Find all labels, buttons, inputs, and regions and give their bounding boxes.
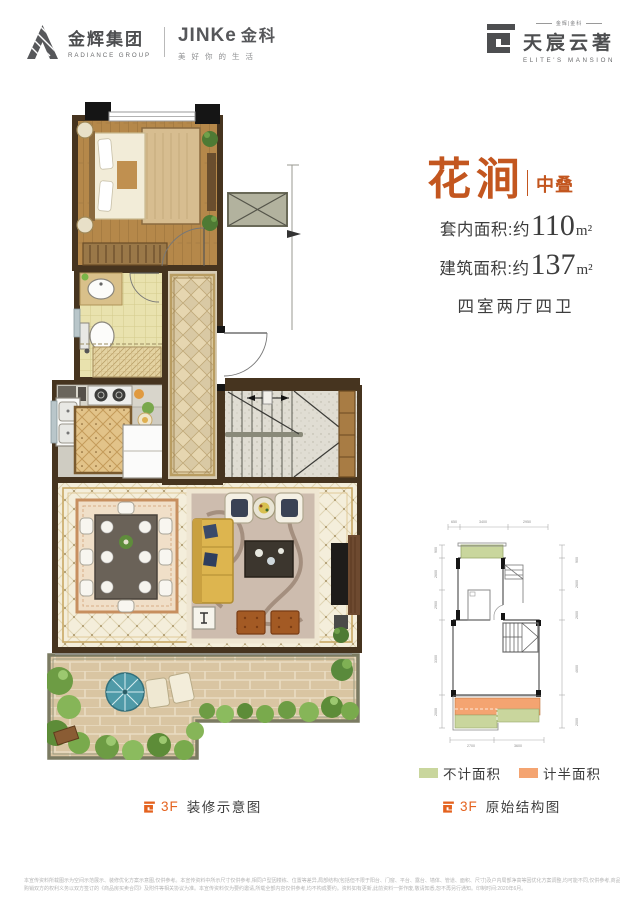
mansion-mini-icon bbox=[143, 800, 156, 813]
kitchen-window bbox=[51, 401, 57, 443]
dims-top: 650 3400 2950 bbox=[448, 520, 548, 530]
build-area-line: 建筑面积:约 137 m² bbox=[413, 250, 619, 280]
caption-right-text: 原始结构图 bbox=[486, 796, 561, 816]
disclaimer-line1: 本宣传资料所载图示为空间示范展示、装修优化方案示意图,仅供参考。本宣传资料中所示… bbox=[24, 877, 620, 885]
floorplan-3f-structural: 650 3400 2950 900 2600 2900 3300 2000 bbox=[432, 515, 628, 751]
legend-not-counted: 不计面积 bbox=[419, 763, 501, 783]
bathroom-window bbox=[74, 309, 80, 337]
staircase bbox=[222, 378, 360, 480]
mansion-name-en: ELITE'S MANSION bbox=[523, 57, 615, 64]
hallway-runner bbox=[171, 275, 214, 475]
dining-set bbox=[77, 500, 177, 612]
living-dining-room bbox=[55, 480, 360, 650]
svg-text:4600: 4600 bbox=[575, 665, 579, 673]
caption-structural-plan: 3F 原始结构图 bbox=[442, 796, 561, 816]
caption-right-floor: 3F bbox=[460, 799, 478, 814]
room-layout-text: 四室两厅四卫 bbox=[413, 293, 619, 317]
not-counted-swatch bbox=[419, 768, 438, 778]
header-left-logos: 金辉集团 RADIANCE GROUP JINKe 金科 美好你的生活 bbox=[24, 22, 277, 62]
unit-info-block: 花涧 中叠 套内面积:约 110 m² 建筑面积:约 137 m² 四室两厅四卫 bbox=[413, 158, 619, 317]
area-legend: 不计面积 计半面积 bbox=[419, 763, 601, 783]
nightstand bbox=[77, 122, 93, 138]
caption-decorated-plan: 3F 装修示意图 bbox=[143, 796, 262, 816]
jinke-logo-latin: JINKe bbox=[178, 25, 237, 47]
sofa-group bbox=[189, 491, 317, 641]
toilet bbox=[80, 322, 114, 350]
unit-name: 花涧 bbox=[427, 158, 525, 202]
mansion-logo-icon bbox=[486, 20, 516, 54]
jinke-tagline: 美好你的生活 bbox=[178, 51, 277, 62]
disclaimer: 本宣传资料所载图示为空间示范展示、装修优化方案示意图,仅供参考。本宣传资料中所示… bbox=[24, 877, 620, 893]
mansion-name-cn: 天宸云著 bbox=[523, 28, 615, 55]
svg-text:2600: 2600 bbox=[434, 570, 438, 578]
patio-umbrella bbox=[106, 673, 144, 711]
caption-left-text: 装修示意图 bbox=[187, 796, 262, 816]
header-right-logo: 金辉|金科 天宸云著 ELITE'S MANSION bbox=[486, 20, 615, 64]
bedroom-dresser bbox=[207, 153, 216, 211]
inner-area-value: 110 bbox=[531, 211, 575, 241]
svg-text:3400: 3400 bbox=[479, 520, 487, 524]
structural-terrace bbox=[453, 696, 541, 730]
bathroom bbox=[74, 270, 165, 380]
shower-area bbox=[93, 347, 161, 377]
bed bbox=[89, 128, 200, 224]
svg-text:2900: 2900 bbox=[434, 601, 438, 609]
unit-name-divider bbox=[527, 170, 528, 196]
header-logo-divider bbox=[164, 27, 165, 57]
inner-area-line: 套内面积:约 110 m² bbox=[413, 211, 619, 241]
jinke-logo-cn: 金科 bbox=[241, 22, 277, 46]
ac-platform bbox=[228, 165, 301, 330]
terrace bbox=[47, 655, 359, 760]
mansion-mini-icon bbox=[442, 800, 455, 813]
nightstand bbox=[77, 217, 93, 233]
svg-text:2700: 2700 bbox=[467, 744, 475, 748]
plant bbox=[202, 131, 218, 147]
mansion-brands-small: 金辉|金科 bbox=[536, 20, 602, 27]
unit-type-badge: 中叠 bbox=[536, 171, 574, 197]
caption-left-floor: 3F bbox=[161, 799, 179, 814]
disclaimer-line2: 购销双方的权利义务以双方签订的《商品房买卖合同》及附件等相关协议为准。本宣传资料… bbox=[24, 885, 620, 893]
kitchen bbox=[51, 383, 165, 480]
svg-text:900: 900 bbox=[434, 547, 438, 553]
half-counted-swatch bbox=[519, 768, 538, 778]
dims-bottom: 2700 3600 bbox=[450, 737, 544, 748]
brochure-page: 金辉集团 RADIANCE GROUP JINKe 金科 美好你的生活 金辉|金… bbox=[0, 0, 640, 920]
svg-text:3600: 3600 bbox=[514, 744, 522, 748]
svg-text:2600: 2600 bbox=[575, 580, 579, 588]
radiance-group-name-cn: 金辉集团 bbox=[68, 25, 151, 50]
bathroom-sink bbox=[88, 279, 114, 299]
floorplan-3f-decorated bbox=[47, 95, 362, 760]
svg-text:2600: 2600 bbox=[575, 611, 579, 619]
build-area-value: 137 bbox=[530, 250, 575, 280]
bedroom bbox=[75, 102, 220, 268]
svg-text:2000: 2000 bbox=[575, 718, 579, 726]
svg-text:3300: 3300 bbox=[434, 655, 438, 663]
wardrobe bbox=[83, 243, 167, 265]
dims-left: 900 2600 2900 3300 2000 bbox=[434, 545, 445, 728]
radiance-group-icon bbox=[24, 24, 61, 61]
svg-text:2000: 2000 bbox=[434, 708, 438, 716]
svg-text:900: 900 bbox=[575, 557, 579, 563]
stair-cabinet bbox=[339, 391, 355, 477]
svg-text:2950: 2950 bbox=[523, 520, 531, 524]
legend-half-counted: 计半面积 bbox=[519, 763, 601, 783]
structural-outline bbox=[451, 543, 541, 730]
dims-right: 900 2600 2600 4600 2000 bbox=[559, 545, 579, 728]
radiance-group-name-en: RADIANCE GROUP bbox=[68, 52, 151, 59]
svg-text:650: 650 bbox=[451, 520, 457, 524]
